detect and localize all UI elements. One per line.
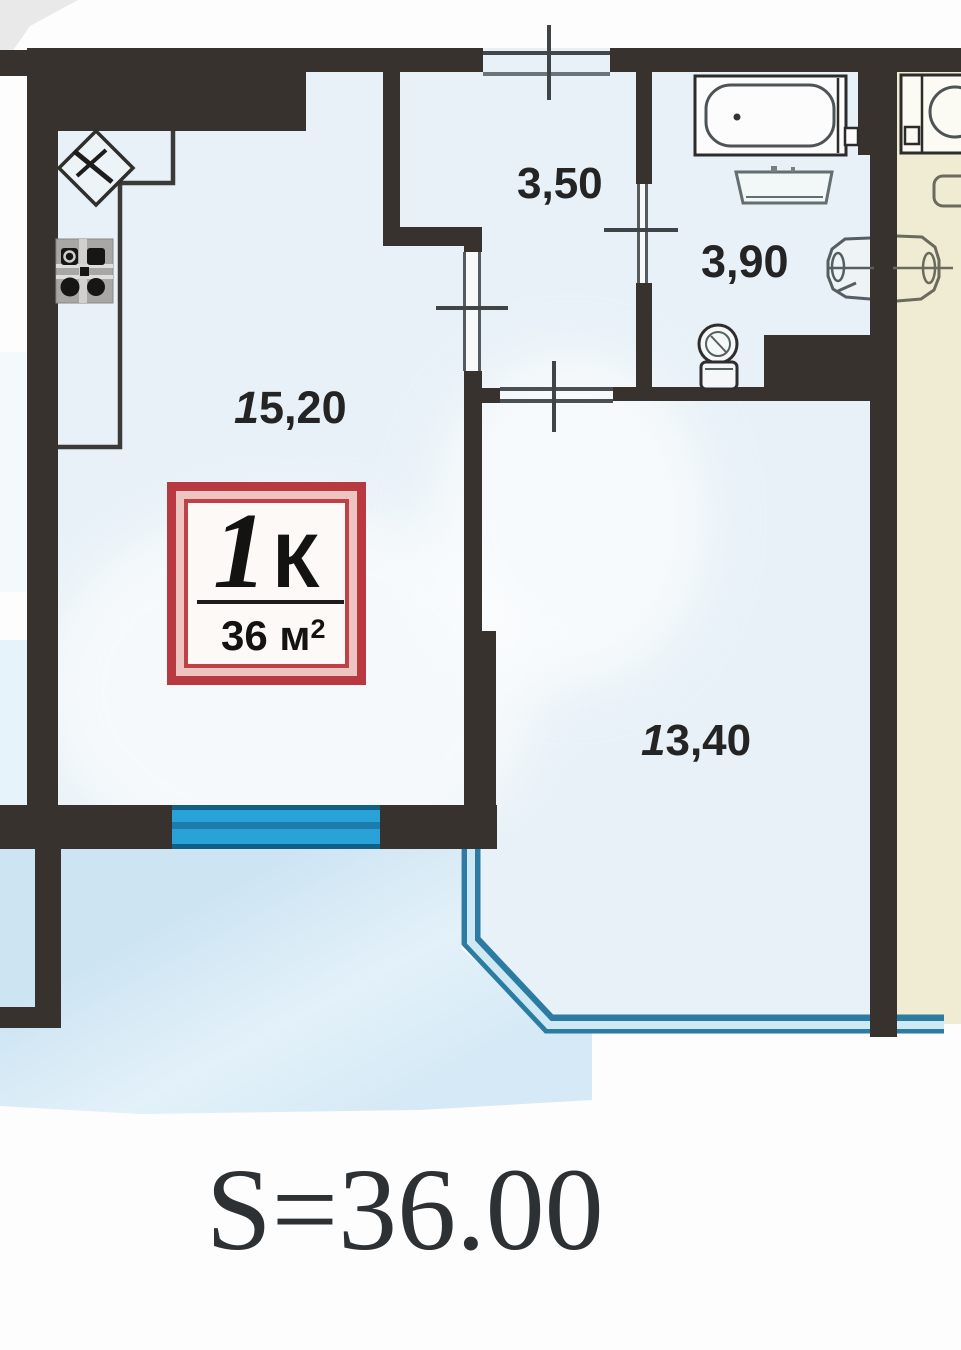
svg-text:15,20: 15,20 (234, 382, 347, 433)
svg-text:13,40: 13,40 (641, 716, 751, 765)
svg-text:3,50: 3,50 (517, 159, 603, 208)
svg-text:1: 1 (213, 492, 267, 611)
svg-text:S=36.00: S=36.00 (206, 1144, 604, 1275)
svg-text:3,90: 3,90 (701, 236, 789, 287)
svg-text:36 м2: 36 м2 (221, 612, 326, 659)
svg-text:К: К (273, 519, 320, 604)
